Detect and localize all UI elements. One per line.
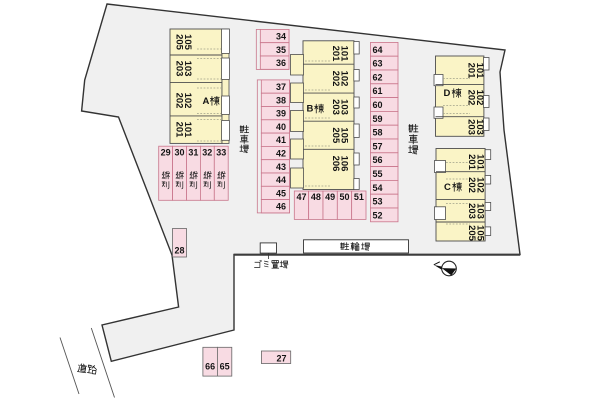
svg-text:29: 29: [161, 148, 171, 158]
svg-text:27: 27: [276, 353, 286, 363]
svg-text:65: 65: [220, 361, 230, 371]
svg-text:59: 59: [373, 114, 383, 124]
svg-text:30: 30: [174, 148, 184, 158]
svg-text:202: 202: [330, 71, 341, 87]
svg-text:42: 42: [276, 149, 286, 159]
svg-text:58: 58: [373, 128, 383, 138]
svg-text:66: 66: [205, 361, 215, 371]
svg-text:206: 206: [330, 156, 341, 172]
svg-text:60: 60: [373, 100, 383, 110]
svg-text:48: 48: [311, 192, 321, 202]
svg-text:C: C: [444, 182, 451, 193]
svg-text:32: 32: [202, 148, 212, 158]
svg-text:43: 43: [276, 162, 286, 172]
svg-text:50: 50: [340, 192, 350, 202]
svg-text:28: 28: [174, 246, 184, 256]
svg-text:202: 202: [174, 93, 185, 109]
svg-text:203: 203: [466, 203, 477, 219]
svg-text:34: 34: [276, 32, 286, 42]
svg-text:205: 205: [466, 225, 477, 242]
svg-text:47: 47: [296, 192, 306, 202]
svg-text:44: 44: [276, 175, 286, 185]
svg-text:39: 39: [276, 109, 286, 119]
svg-text:31: 31: [188, 148, 198, 158]
svg-text:205: 205: [330, 127, 341, 144]
svg-text:201: 201: [466, 154, 477, 171]
svg-text:203: 203: [174, 61, 185, 77]
svg-text:40: 40: [276, 122, 286, 132]
svg-text:63: 63: [373, 59, 383, 69]
svg-text:A: A: [203, 96, 210, 107]
svg-text:51: 51: [354, 192, 364, 202]
svg-text:61: 61: [373, 86, 383, 96]
svg-text:35: 35: [276, 45, 286, 55]
svg-text:D: D: [444, 88, 451, 99]
svg-text:38: 38: [276, 95, 286, 105]
svg-text:54: 54: [373, 183, 383, 193]
svg-text:203: 203: [466, 119, 477, 135]
svg-text:52: 52: [373, 210, 383, 220]
svg-text:53: 53: [373, 197, 383, 207]
svg-text:36: 36: [276, 58, 286, 68]
svg-text:45: 45: [276, 188, 286, 198]
svg-text:201: 201: [466, 63, 477, 80]
svg-text:203: 203: [330, 99, 341, 115]
svg-text:55: 55: [373, 169, 383, 179]
svg-text:46: 46: [276, 202, 286, 212]
svg-text:B: B: [307, 104, 314, 115]
svg-text:37: 37: [276, 82, 286, 92]
svg-text:202: 202: [466, 90, 477, 106]
svg-text:64: 64: [373, 45, 383, 55]
svg-text:205: 205: [174, 34, 185, 51]
svg-text:202: 202: [466, 177, 477, 193]
svg-text:33: 33: [216, 148, 226, 158]
svg-text:41: 41: [276, 135, 286, 145]
svg-text:49: 49: [325, 192, 335, 202]
svg-text:56: 56: [373, 155, 383, 165]
svg-text:62: 62: [373, 72, 383, 82]
svg-text:201: 201: [174, 122, 185, 139]
svg-text:201: 201: [330, 46, 341, 63]
svg-text:57: 57: [373, 141, 383, 151]
